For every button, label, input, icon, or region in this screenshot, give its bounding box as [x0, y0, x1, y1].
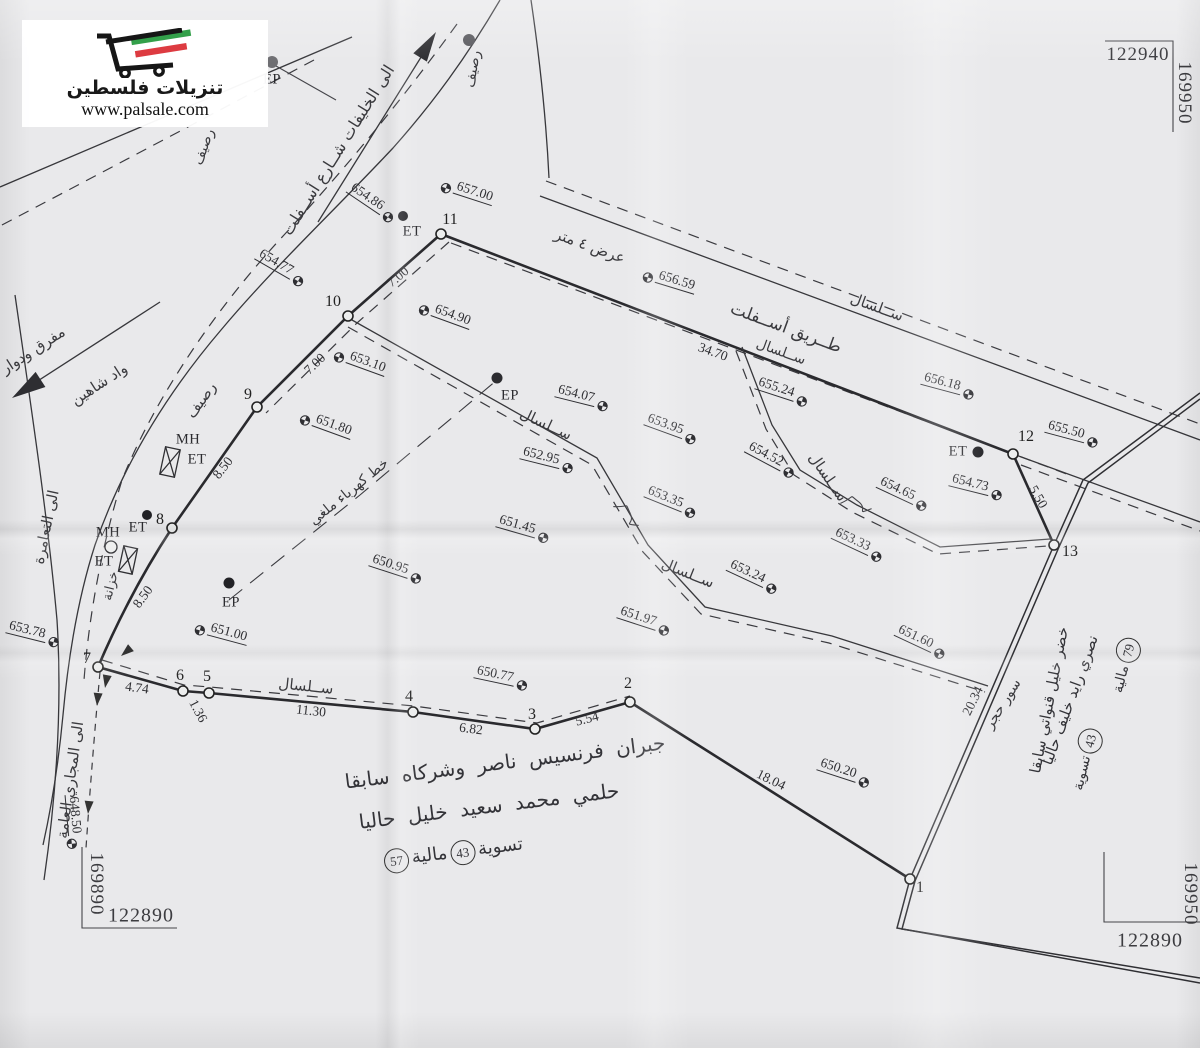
vertex-number: 9	[244, 386, 252, 404]
measurement-label: 4.74	[124, 678, 150, 697]
grid-northing-bottom-left: 169890	[85, 853, 107, 916]
marker-code-label: ET	[403, 224, 422, 241]
grid-easting-bottom-right: 122890	[1117, 930, 1183, 953]
utility-dot	[142, 510, 152, 520]
marker-code-label: MH	[96, 525, 120, 542]
marker-code-label: MH	[176, 432, 200, 449]
cart-logo-icon	[85, 28, 205, 78]
vertex-number: 8	[156, 511, 164, 529]
vertex-number: 2	[624, 675, 632, 693]
utility-dot	[398, 211, 408, 221]
cancelled-electricity-line	[229, 66, 497, 600]
vertex-point-3	[530, 724, 540, 734]
vertex-number: 3	[528, 706, 536, 724]
vertex-number: 13	[1062, 543, 1078, 561]
vertex-point-11	[436, 229, 446, 239]
neighbour-settlement-label: تسوية	[1070, 754, 1094, 792]
vertex-point-8	[167, 523, 177, 533]
settlement-number: 43	[449, 839, 477, 867]
marker-code-label: ET	[95, 554, 114, 571]
vertex-point-13	[1049, 540, 1059, 550]
marker-code-label: EP	[501, 388, 519, 405]
map-linework	[0, 0, 1200, 1048]
khulayfat-direction-arrow	[318, 28, 443, 222]
marker-code-label: ET	[188, 452, 207, 469]
utility-dot	[973, 447, 984, 458]
watermark-brand-text: تنزيلات فلسطين	[67, 78, 224, 100]
utility-dot	[463, 34, 475, 46]
manhole-symbol	[105, 447, 180, 574]
vertex-number: 11	[442, 211, 457, 229]
vertex-point-12	[1008, 449, 1018, 459]
vertex-point-1	[905, 874, 915, 884]
watermark-url-text: www.palsale.com	[81, 100, 209, 120]
vertex-number: 7	[83, 650, 91, 668]
grid-northing-top-right: 169950	[1173, 62, 1195, 125]
fiscal-number: 57	[383, 847, 411, 875]
vertex-point-5	[204, 688, 214, 698]
vertex-number: 12	[1018, 428, 1034, 446]
utility-dot	[224, 578, 235, 589]
vertex-point-6	[178, 686, 188, 696]
vertex-point-9	[252, 402, 262, 412]
benchmark-icon	[515, 678, 529, 692]
fence-lines	[102, 242, 1050, 723]
neighbour-fiscal-label: مالية	[1110, 664, 1132, 695]
vertex-number: 6	[176, 667, 184, 685]
utility-dot	[492, 373, 503, 384]
settlement-label: تسوية	[477, 833, 524, 859]
fiscal-label: مالية	[410, 843, 448, 868]
vertex-number: 10	[325, 293, 341, 311]
vertex-number: 4	[405, 688, 413, 706]
vertex-point-10	[343, 311, 353, 321]
palsale-watermark: تنزيلات فلسطين www.palsale.com	[22, 20, 268, 127]
grid-easting-top-right: 122940	[1107, 44, 1170, 66]
grid-corner-brackets	[82, 41, 1200, 928]
vertex-number: 5	[203, 668, 211, 686]
vertex-number: 1	[916, 879, 924, 897]
marker-code-label: ET	[129, 520, 148, 537]
vertex-point-2	[625, 697, 635, 707]
grid-easting-bottom-left: 122890	[108, 905, 174, 928]
vertex-point-7	[93, 662, 103, 672]
survey-map-page: 657.00654.86654.77656.59654.90653.10656.…	[0, 0, 1200, 1048]
vertex-point-4	[408, 707, 418, 717]
measurement-label: 6.82	[458, 720, 483, 739]
grid-northing-bottom-right: 169950	[1179, 863, 1200, 926]
measurement-label: 11.30	[295, 701, 326, 720]
marker-code-label: EP	[222, 595, 240, 612]
marker-code-label: ET	[949, 444, 968, 461]
